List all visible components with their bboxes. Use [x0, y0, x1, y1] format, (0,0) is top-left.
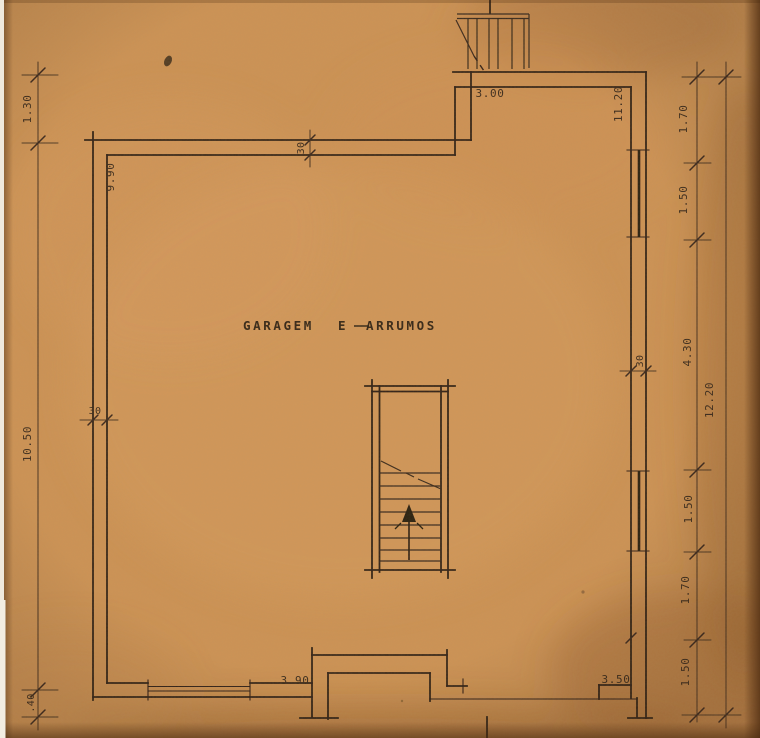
floor-plan-drawing: GARAGEM E ARRUMOS 1.30 10.50 .40 9.90 3.…	[0, 0, 760, 738]
photo-edges	[0, 0, 760, 738]
floor-plan-photo: GARAGEM E ARRUMOS 1.30 10.50 .40 9.90 3.…	[0, 0, 760, 738]
